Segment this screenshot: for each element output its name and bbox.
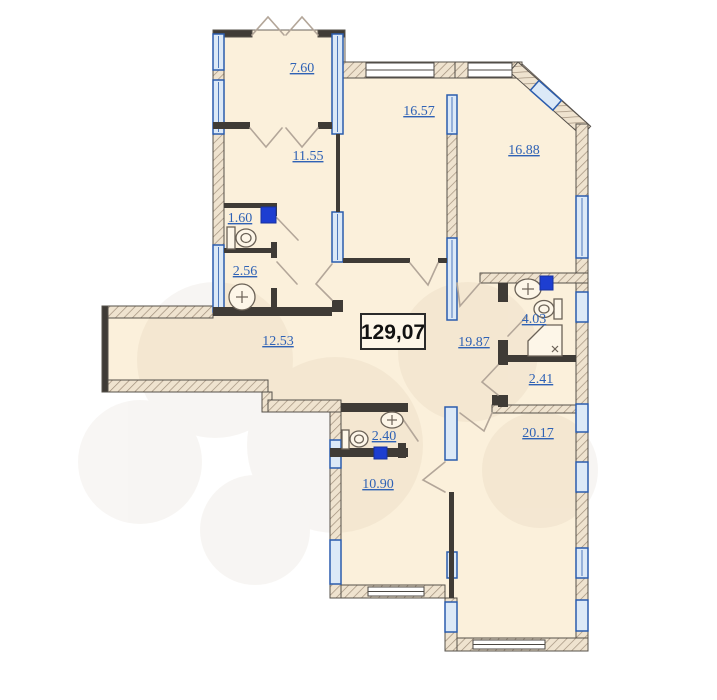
- total-area-box: 129,07: [361, 314, 425, 349]
- window: [576, 404, 588, 432]
- window: [468, 63, 512, 77]
- room-label-12-53: 12.53: [262, 334, 294, 349]
- window: [473, 640, 545, 649]
- sink-icon: [229, 284, 255, 310]
- window: [368, 587, 424, 596]
- window: [330, 540, 341, 584]
- room-label-16-88: 16.88: [508, 143, 540, 158]
- room-label-19-87: 19.87: [458, 335, 490, 350]
- shaft-icon: [540, 276, 553, 290]
- toilet-icon: [227, 227, 256, 249]
- window: [445, 407, 457, 460]
- floor-plan-svg: 7.60 11.55 16.57 16.88 1.60 2.56 12.53 1…: [0, 0, 717, 700]
- room-label-16-57: 16.57: [403, 104, 435, 119]
- sink-icon: [515, 279, 541, 299]
- room-label-balcony: 7.60: [290, 61, 315, 76]
- shaft-icon: [374, 447, 387, 459]
- toilet-icon: [342, 430, 368, 449]
- window: [445, 602, 457, 632]
- shaft-icon: [261, 207, 276, 223]
- window: [366, 63, 434, 77]
- room-label-2-56: 2.56: [233, 264, 258, 279]
- room-label-20-17: 20.17: [522, 426, 554, 441]
- window: [576, 600, 588, 631]
- floor-plan-image: 7.60 11.55 16.57 16.88 1.60 2.56 12.53 1…: [0, 0, 717, 700]
- total-area-value: 129,07: [361, 321, 425, 344]
- room-label-4-03: 4.03: [522, 312, 547, 327]
- room-label-2-40: 2.40: [372, 429, 397, 444]
- room-label-10-90: 10.90: [362, 477, 394, 492]
- window: [576, 462, 588, 492]
- window: [576, 292, 588, 322]
- room-label-1-60: 1.60: [228, 211, 253, 226]
- room-label-2-41: 2.41: [529, 372, 554, 387]
- room-label-11-55: 11.55: [293, 149, 324, 164]
- sink-icon: [381, 412, 403, 428]
